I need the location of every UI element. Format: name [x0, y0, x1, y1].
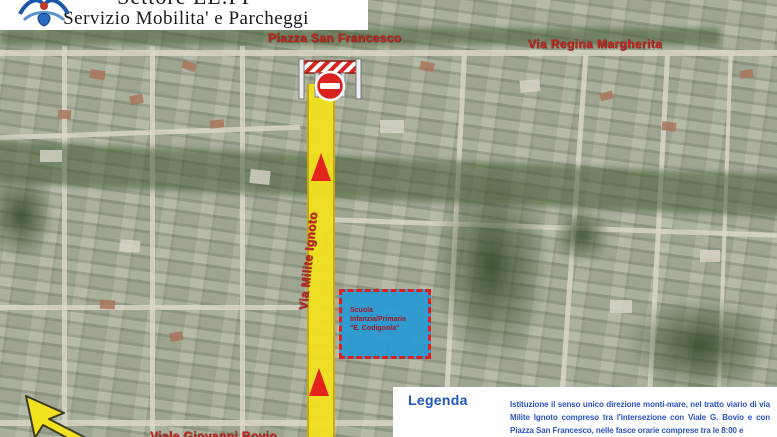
building-block	[40, 150, 62, 162]
roof-block	[599, 90, 614, 101]
street-label-viale-giovanni-bovio: Viale Giovanni Bovio	[150, 429, 277, 437]
ordinance-note-text: Istituzione il senso unico direzione mon…	[510, 399, 770, 437]
legend-title: Legenda	[408, 392, 468, 408]
street-segment	[240, 46, 245, 437]
building-block	[700, 250, 720, 262]
school-zone-label-line3: "E. Codignola"	[350, 324, 428, 333]
roof-block	[100, 299, 116, 309]
road-closure-barrier-icon	[297, 56, 363, 108]
building-block	[610, 300, 632, 313]
building-block	[520, 79, 541, 93]
street-segment	[150, 46, 155, 437]
street-segment	[62, 46, 67, 437]
title-line-settore: Settore LL.PP	[58, 0, 314, 8]
park-area	[555, 205, 610, 265]
street-segment	[0, 305, 300, 310]
scanned-ordinance-map-page: Scuola Infanzia/Primaria "E. Codignola" …	[0, 0, 777, 437]
street-label-piazza-san-francesco: Piazza San Francesco	[268, 31, 401, 45]
no-entry-sign-icon	[316, 72, 344, 100]
title-line-servizio: Servizio Mobilita' e Parcheggi	[58, 8, 314, 29]
school-zone-label-line2: Infanzia/Primaria	[350, 315, 428, 324]
building-block	[380, 120, 404, 133]
legend-panel: Legenda Istituzione il senso unico direz…	[393, 387, 777, 437]
direction-arrow-icon	[311, 153, 331, 181]
document-title: Settore LL.PP Servizio Mobilita' e Parch…	[58, 0, 314, 29]
north-arrow-icon	[18, 392, 118, 437]
roof-block	[169, 331, 183, 342]
park-area	[432, 165, 552, 365]
street-label-via-regina-margherita: Via Regina Margherita	[528, 37, 662, 51]
school-zone-box: Scuola Infanzia/Primaria "E. Codignola"	[339, 289, 431, 359]
satellite-map: Scuola Infanzia/Primaria "E. Codignola" …	[0, 0, 777, 437]
roof-block	[129, 94, 144, 106]
roof-block	[58, 109, 72, 119]
building-block	[120, 239, 141, 252]
street-segment	[330, 217, 777, 238]
direction-arrow-icon	[309, 368, 329, 396]
roof-block	[210, 119, 225, 128]
park-area	[625, 295, 775, 395]
roof-block	[89, 69, 105, 80]
roof-block	[740, 69, 754, 79]
roof-block	[419, 61, 435, 73]
roof-block	[181, 60, 197, 72]
roof-block	[661, 121, 676, 132]
municipal-crest-icon	[14, 0, 74, 28]
school-zone-label-line1: Scuola	[350, 306, 428, 315]
building-block	[249, 169, 270, 185]
